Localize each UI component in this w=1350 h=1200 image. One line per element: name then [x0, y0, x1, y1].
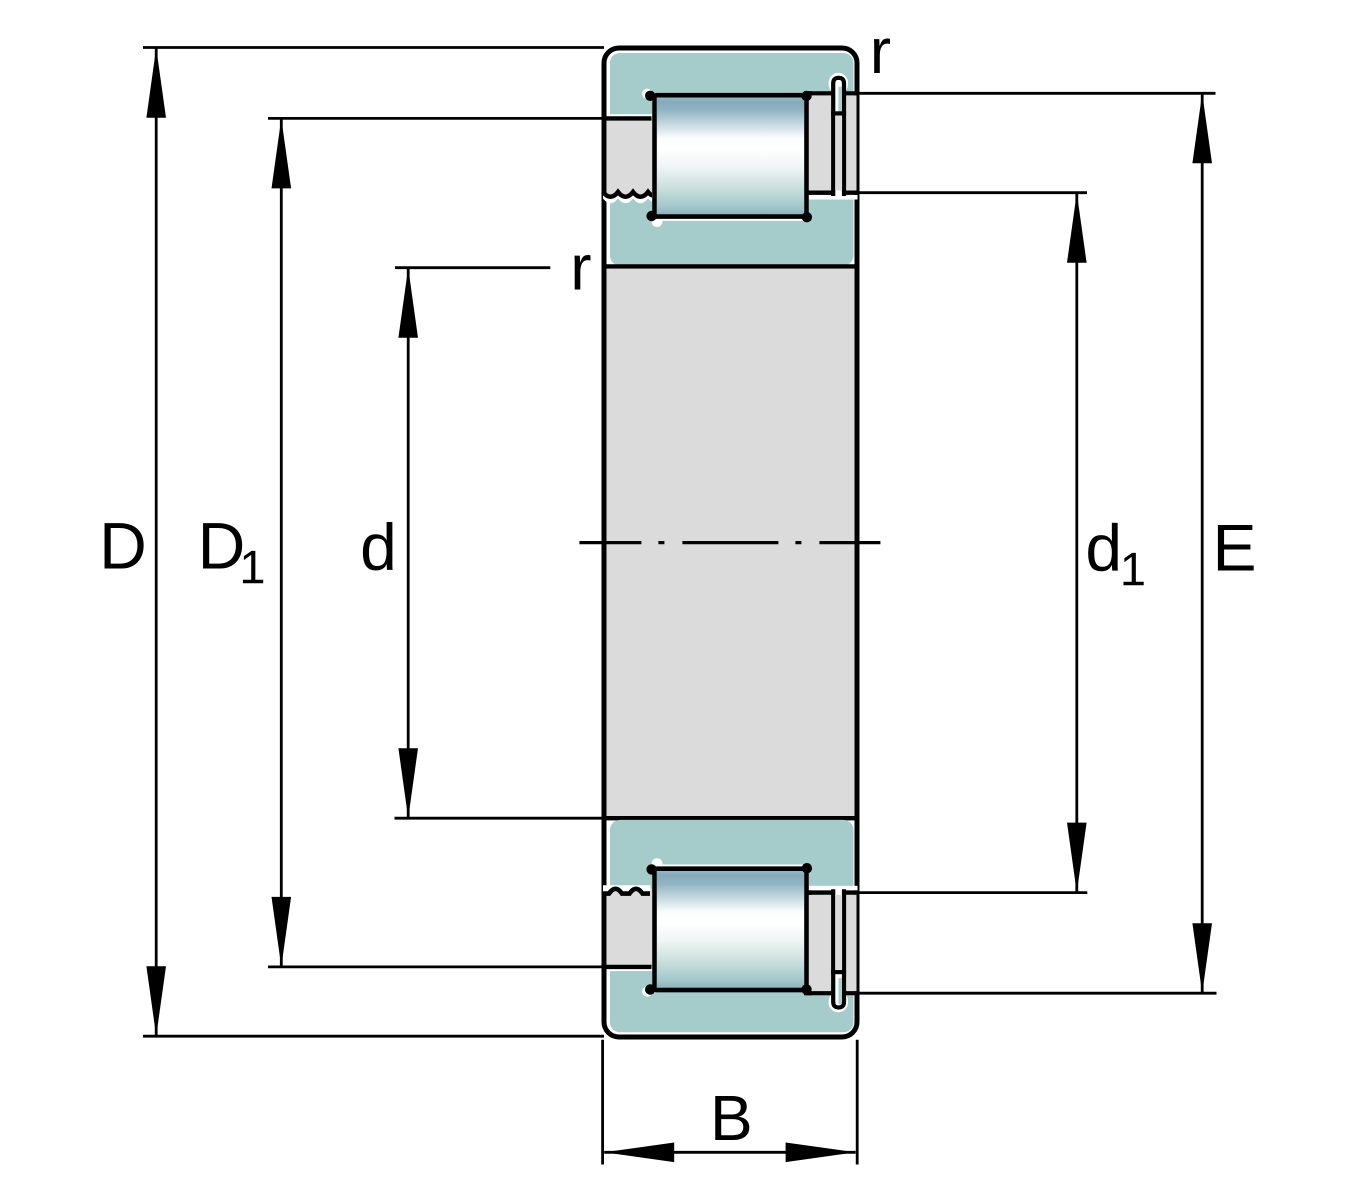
- svg-text:r: r: [870, 15, 891, 87]
- svg-text:E: E: [1212, 511, 1256, 585]
- svg-text:1: 1: [239, 540, 265, 593]
- svg-text:D: D: [99, 509, 147, 583]
- svg-text:1: 1: [1120, 542, 1146, 595]
- svg-text:r: r: [570, 231, 591, 303]
- svg-text:d: d: [1085, 511, 1122, 585]
- svg-text:D: D: [198, 508, 246, 582]
- svg-text:B: B: [710, 1082, 753, 1154]
- svg-text:d: d: [360, 510, 397, 584]
